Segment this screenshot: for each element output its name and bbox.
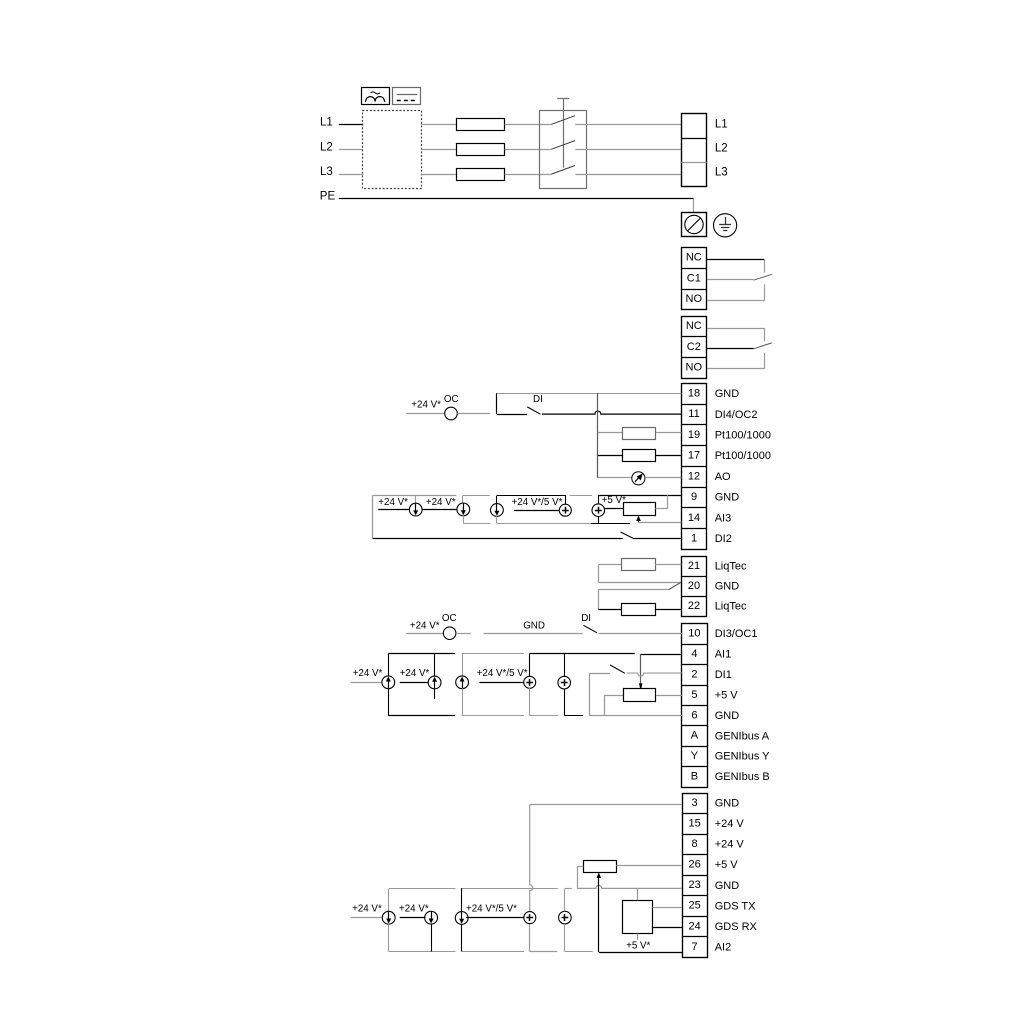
svg-text:2: 2	[691, 668, 697, 680]
svg-text:L1: L1	[320, 117, 333, 129]
svg-text:GND: GND	[523, 620, 545, 631]
svg-text:GND: GND	[715, 388, 740, 400]
svg-text:Pt100/1000: Pt100/1000	[715, 450, 771, 462]
svg-text:L3: L3	[320, 166, 333, 178]
svg-text:C1: C1	[687, 272, 701, 284]
svg-text:22: 22	[688, 600, 700, 612]
svg-text:1: 1	[691, 533, 697, 545]
svg-text:+5 V*: +5 V*	[626, 941, 650, 952]
svg-text:NC: NC	[686, 252, 702, 264]
svg-text:GDS TX: GDS TX	[715, 900, 756, 912]
svg-text:DI: DI	[581, 613, 591, 624]
svg-text:+24 V*: +24 V*	[353, 668, 383, 679]
svg-text:GENIbus A: GENIbus A	[715, 730, 770, 742]
svg-text:25: 25	[688, 900, 700, 912]
svg-text:3: 3	[692, 797, 698, 809]
svg-text:C2: C2	[687, 341, 701, 353]
svg-text:OC: OC	[444, 394, 459, 405]
svg-text:+24 V*/5 V*: +24 V*/5 V*	[512, 497, 563, 508]
svg-text:LiqTec: LiqTec	[715, 561, 747, 573]
svg-text:DI3/OC1: DI3/OC1	[715, 628, 758, 640]
svg-text:A: A	[691, 730, 699, 742]
svg-text:Y: Y	[691, 750, 699, 762]
svg-text:+5 V: +5 V	[715, 690, 739, 702]
svg-text:AI2: AI2	[715, 941, 732, 953]
svg-text:GND: GND	[715, 492, 740, 504]
svg-text:+24 V*: +24 V*	[400, 668, 430, 679]
svg-text:17: 17	[688, 450, 700, 462]
svg-text:26: 26	[688, 859, 700, 871]
svg-text:AI1: AI1	[715, 649, 732, 661]
svg-text:DI1: DI1	[715, 669, 732, 681]
svg-text:5: 5	[691, 689, 697, 701]
svg-text:21: 21	[688, 560, 700, 572]
svg-text:+24 V*: +24 V*	[399, 904, 429, 915]
svg-text:24: 24	[688, 920, 700, 932]
svg-text:L2: L2	[320, 141, 333, 153]
svg-text:18: 18	[688, 388, 700, 400]
svg-text:+24 V*: +24 V*	[378, 497, 408, 508]
svg-text:+24 V: +24 V	[715, 839, 745, 851]
svg-text:+24 V*: +24 V*	[426, 497, 456, 508]
svg-text:GND: GND	[715, 880, 740, 892]
svg-text:4: 4	[691, 648, 697, 660]
svg-text:GENIbus Y: GENIbus Y	[715, 751, 770, 763]
svg-text:L3: L3	[715, 167, 728, 179]
svg-text:GND: GND	[715, 798, 740, 810]
svg-text:+24 V*: +24 V*	[352, 904, 382, 915]
svg-text:GND: GND	[715, 581, 740, 593]
svg-text:+24 V*: +24 V*	[411, 400, 441, 411]
svg-text:LiqTec: LiqTec	[715, 600, 747, 612]
svg-text:GENIbus B: GENIbus B	[715, 771, 770, 783]
svg-text:12: 12	[688, 470, 700, 482]
svg-text:PE: PE	[320, 191, 336, 203]
svg-text:NO: NO	[686, 293, 703, 305]
svg-text:23: 23	[688, 879, 700, 891]
svg-text:+5 V: +5 V	[715, 859, 739, 871]
svg-text:AO: AO	[715, 471, 731, 483]
svg-text:11: 11	[688, 408, 699, 420]
svg-text:Pt100/1000: Pt100/1000	[715, 430, 771, 442]
svg-text:OC: OC	[442, 613, 457, 624]
svg-text:GND: GND	[715, 710, 740, 722]
svg-text:L2: L2	[715, 143, 728, 155]
svg-text:NO: NO	[686, 362, 703, 374]
svg-text:AI3: AI3	[715, 512, 732, 524]
svg-text:+24 V: +24 V	[715, 818, 745, 830]
svg-text:6: 6	[691, 709, 697, 721]
svg-text:7: 7	[692, 941, 698, 953]
svg-text:DI4/OC2: DI4/OC2	[715, 409, 758, 421]
svg-text:+24 V*: +24 V*	[410, 620, 440, 631]
svg-text:+24 V*/5 V*: +24 V*/5 V*	[477, 668, 528, 679]
svg-text:19: 19	[688, 429, 700, 441]
svg-text:DI2: DI2	[715, 533, 732, 545]
svg-text:9: 9	[691, 491, 697, 503]
svg-text:15: 15	[688, 818, 700, 830]
svg-text:20: 20	[688, 580, 700, 592]
svg-text:DI: DI	[533, 394, 543, 405]
svg-text:+24 V*/5 V*: +24 V*/5 V*	[466, 904, 517, 915]
svg-text:L1: L1	[715, 118, 728, 130]
svg-text:NC: NC	[686, 320, 702, 332]
svg-text:14: 14	[688, 512, 700, 524]
svg-text:10: 10	[688, 628, 700, 640]
svg-text:GDS RX: GDS RX	[715, 921, 758, 933]
svg-text:+5 V*: +5 V*	[602, 495, 626, 506]
svg-text:8: 8	[692, 838, 698, 850]
svg-text:B: B	[691, 771, 698, 783]
